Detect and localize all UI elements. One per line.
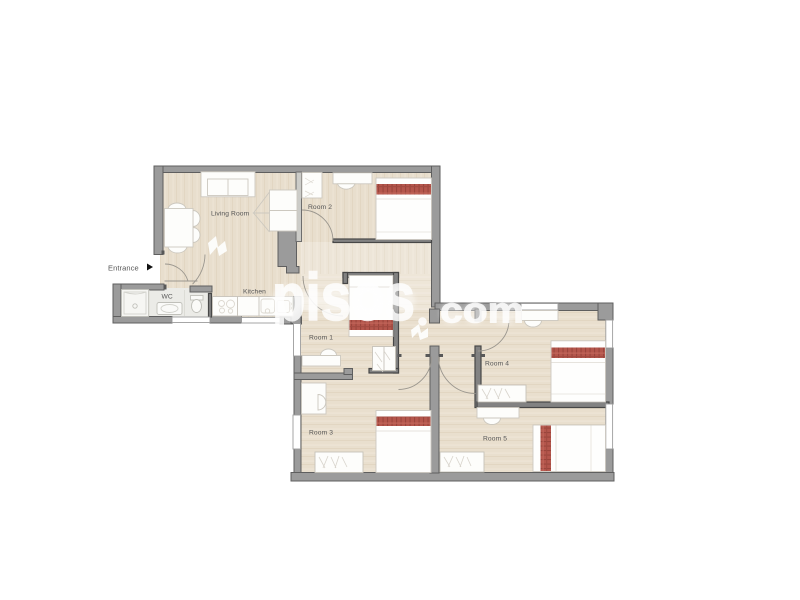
svg-text:Room 3: Room 3 [309,430,333,437]
svg-text:pisos: pisos [272,260,415,335]
svg-text:Room 2: Room 2 [308,204,332,211]
svg-text:Room 1: Room 1 [309,335,333,342]
svg-text:Room 5: Room 5 [483,436,507,443]
svg-text:Room 4: Room 4 [485,361,509,368]
svg-text:WC: WC [162,294,173,301]
svg-text:com: com [440,290,524,331]
svg-text:Entrance: Entrance [108,263,139,272]
svg-text:Kitchen: Kitchen [243,289,266,296]
svg-text:Living Room: Living Room [211,211,250,218]
